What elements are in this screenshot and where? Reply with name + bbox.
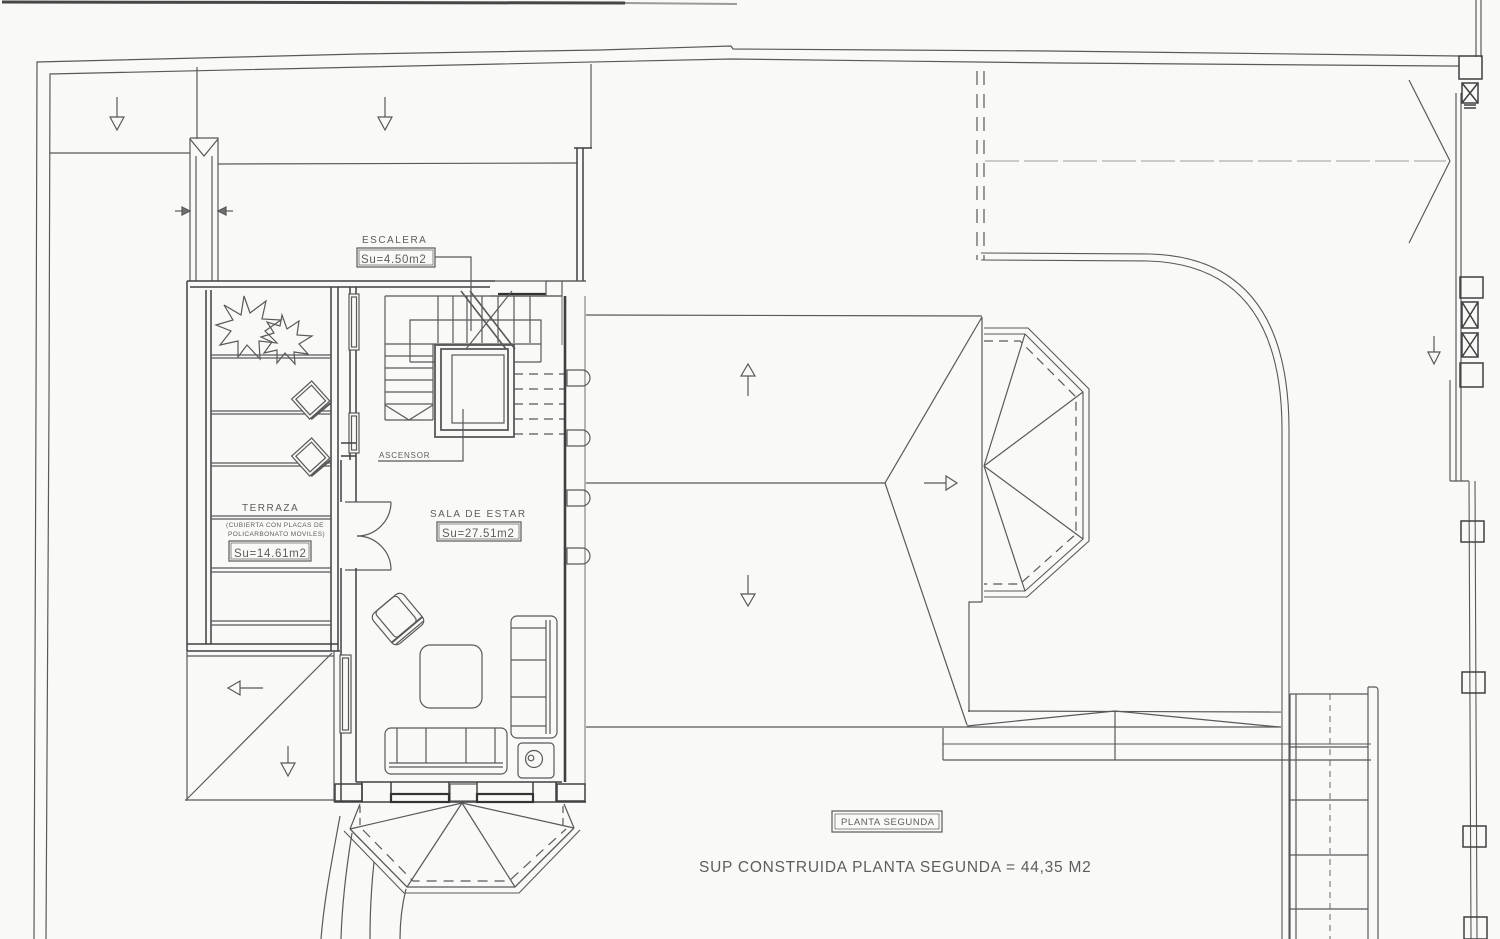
svg-text:Su=14.61m2: Su=14.61m2 (234, 548, 307, 560)
svg-text:SALA DE ESTAR: SALA DE ESTAR (430, 509, 527, 520)
svg-text:(CUBIERTA CON PLACAS DE: (CUBIERTA CON PLACAS DE (226, 522, 324, 529)
svg-text:SUP CONSTRUIDA PLANTA SEGUN: SUP CONSTRUIDA PLANTA SEGUNDA = 44,35 M2 (699, 859, 1092, 876)
svg-text:ASCENSOR: ASCENSOR (379, 451, 430, 460)
svg-text:Su=27.51m2: Su=27.51m2 (442, 528, 515, 540)
svg-text:Su=4.50m2: Su=4.50m2 (361, 254, 426, 266)
svg-text:TERRAZA: TERRAZA (242, 503, 299, 514)
svg-text:PLANTA SEGUNDA: PLANTA SEGUNDA (841, 817, 935, 828)
svg-text:POLICARBONATO MOVILES): POLICARBONATO MOVILES) (228, 531, 325, 538)
svg-text:ESCALERA: ESCALERA (362, 235, 427, 246)
